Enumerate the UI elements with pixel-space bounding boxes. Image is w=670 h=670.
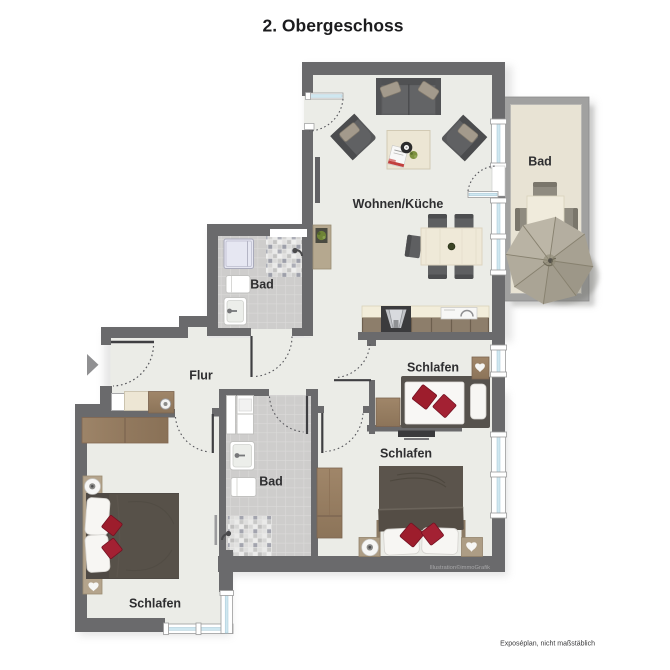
svg-text:Schlafen: Schlafen [380,447,432,461]
svg-text:Bad: Bad [250,278,274,292]
svg-text:Schlafen: Schlafen [407,361,459,375]
svg-text:Flur: Flur [189,369,213,383]
svg-text:2. Obergeschoss: 2. Obergeschoss [262,16,403,36]
svg-text:Bad: Bad [528,155,552,169]
svg-text:Wohnen/Küche: Wohnen/Küche [353,197,444,211]
svg-text:Illustration©immoGrafik: Illustration©immoGrafik [430,564,490,571]
svg-text:Exposéplan, nicht maßstäblich: Exposéplan, nicht maßstäblich [500,641,595,648]
svg-text:Schlafen: Schlafen [129,597,181,611]
svg-text:Bad: Bad [259,475,283,489]
